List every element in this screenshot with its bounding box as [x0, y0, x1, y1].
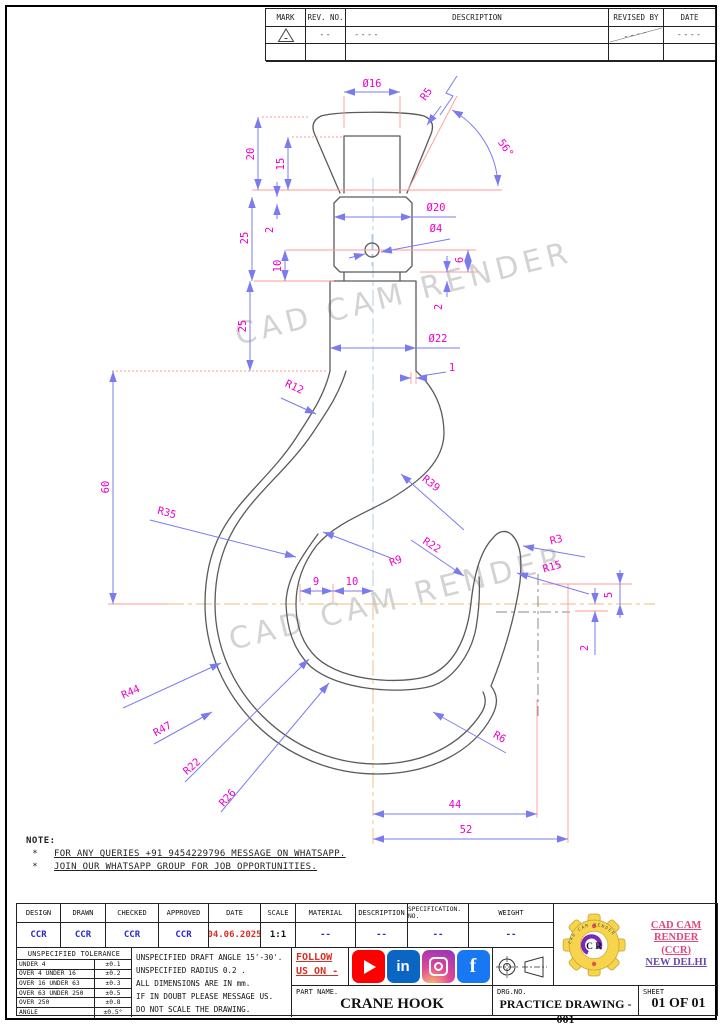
revision-empty-cell [266, 44, 306, 62]
drg-no-label: DRG.NO. [493, 986, 638, 996]
general-note-line: UNSPECIFIED DRAFT ANGLE 15'-30'. [136, 951, 291, 964]
tb-header-approved: APPROVED [159, 904, 209, 923]
dim-label: 2 [433, 304, 445, 310]
revision-rev-no: -- [306, 27, 346, 44]
tolerance-row: OVER 250 ±0.8 [17, 998, 131, 1008]
brand-line3: NEW DELHI [634, 957, 718, 970]
dim-label: Ø16 [363, 78, 382, 90]
dim-label: R9 [388, 553, 404, 569]
dim-label: 6 [454, 257, 466, 263]
revision-empty-cell [306, 44, 346, 62]
youtube-icon [352, 950, 385, 983]
dim-dia20: Ø20 [334, 202, 456, 217]
revision-header-revised-by: REVISED BY [609, 9, 664, 27]
sheet-value: 01 OF 01 [639, 996, 718, 1012]
revision-empty-cell [609, 44, 664, 62]
dim-dia16: Ø16 [344, 78, 400, 92]
tb-header-design: DESIGN [17, 904, 61, 923]
tolerance-value: ±0.5° [95, 1009, 131, 1016]
brand-line1: CAD CAM RENDER [634, 920, 718, 945]
tolerance-title: UNSPECIFIED TOLERANCE [17, 948, 131, 960]
dim-2-bottom: 2 [579, 588, 595, 655]
tb-header-drawn: DRAWN [61, 904, 106, 923]
tb-value-material: -- [296, 923, 356, 948]
tb-header-material: MATERIAL [296, 904, 356, 923]
revision-table: MARK REV. NO. DESCRIPTION REVISED BY DAT… [265, 8, 716, 61]
tolerance-range: OVER 250 [17, 998, 95, 1007]
dim-r12: R12 [281, 378, 316, 414]
dim-label: R35 [156, 505, 177, 522]
note-text: FOR ANY QUERIES +91 9454229796 MESSAGE O… [54, 849, 346, 859]
dim-dia22: Ø22 [330, 333, 460, 348]
revision-header-date: DATE [664, 9, 715, 27]
dim-label: R47 [151, 720, 173, 740]
ccr-gear-logo-icon: C R CAD CAM RENDER [558, 905, 630, 985]
tolerance-row: ANGLE ±0.5° [17, 1008, 131, 1018]
dim-r22-bowl: R22 [181, 659, 309, 782]
dim-label: 20 [245, 148, 257, 161]
dim-44: 44 [373, 799, 537, 814]
facebook-icon: f [457, 950, 490, 983]
tb-value-checked: CCR [106, 923, 159, 948]
tolerance-value: ±0.5 [95, 990, 131, 997]
tb-value-weight: -- [469, 923, 554, 948]
drawing-sheet: CAD CAM RENDER CAD CAM RENDER [0, 0, 721, 1024]
dim-label: R6 [491, 729, 508, 746]
revision-triangle-icon [277, 27, 295, 43]
dim-label: R39 [420, 473, 442, 494]
sheet-label: SHEET [639, 986, 718, 996]
tolerance-range: OVER 16 UNDER 63 [17, 979, 95, 988]
tb-value-approved: CCR [159, 923, 209, 948]
tolerance-row: OVER 63 UNDER 250 ±0.5 [17, 989, 131, 999]
tb-header-checked: CHECKED [106, 904, 159, 923]
dim-9: 9 [300, 576, 333, 591]
tolerance-range: OVER 4 UNDER 16 [17, 970, 95, 979]
dim-label: 25 [239, 232, 251, 245]
dim-r9: R9 [323, 532, 404, 569]
gear-letters: C R [586, 941, 602, 951]
sheet-cell: SHEET 01 OF 01 [639, 986, 718, 1016]
dim-60: 60 [100, 371, 113, 604]
revision-mark-cell [266, 27, 306, 44]
dim-label: 5 [603, 592, 615, 598]
note-block: NOTE: * FOR ANY QUERIES +91 9454229796 M… [26, 836, 446, 872]
note-item: * FOR ANY QUERIES +91 9454229796 MESSAGE… [26, 849, 446, 859]
tb-value-drawn: CCR [61, 923, 106, 948]
part-name-value: CRANE HOOK [292, 996, 492, 1013]
play-glyph [364, 960, 376, 974]
revision-description: ---- [346, 27, 609, 44]
dim-label: R44 [120, 683, 142, 702]
linkedin-glyph: in [396, 958, 409, 975]
dim-label: Ø22 [429, 333, 448, 345]
dim-label: R5 [418, 86, 435, 103]
dim-label: 9 [313, 576, 319, 588]
dim-label: 2 [264, 227, 276, 233]
follow-line1: FOLLOW [296, 952, 332, 963]
dim-label: R12 [283, 378, 305, 397]
revision-header-rev-no: REV. NO. [306, 9, 346, 27]
tolerance-value: ±0.2 [95, 970, 131, 977]
camera-glyph [429, 957, 448, 976]
general-note-line: IF IN DOUBT PLEASE MESSAGE US. [136, 990, 291, 1003]
extension-lines [108, 96, 632, 843]
linkedin-icon: in [387, 950, 420, 983]
general-note-line: UNSPECIFIED RADIUS 0.2 . [136, 964, 291, 977]
tb-value-description: -- [356, 923, 408, 948]
dim-label: R22 [181, 756, 203, 778]
projection-symbol-cell [493, 948, 554, 986]
drg-no-cell: DRG.NO. PRACTICE DRAWING - 001 [493, 986, 639, 1016]
tb-value-scale: 1:1 [261, 923, 296, 948]
general-note-line: DO NOT SCALE THE DRAWING. [136, 1003, 291, 1016]
dim-angle56: 56° [452, 110, 516, 186]
tb-value-design: CCR [17, 923, 61, 948]
watermark-upper: CAD CAM RENDER [231, 235, 575, 353]
dim-1: 1 [402, 362, 455, 378]
watermark-text: CAD CAM RENDER CAD CAM RENDER [225, 235, 575, 658]
dim-10-left: 10 [272, 250, 285, 281]
instagram-icon [422, 950, 455, 983]
dim-r26: R26 [217, 683, 329, 812]
dim-20: 20 [245, 117, 258, 190]
note-bullet: * [26, 849, 44, 859]
dim-dia4: Ø4 [349, 223, 450, 258]
tolerance-value: ±0.8 [95, 999, 131, 1006]
dim-25-lower: 25 [237, 281, 250, 371]
dim-label: 2 [579, 645, 591, 651]
note-text: JOIN OUR WHATSAPP GROUP FOR JOB OPPORTUN… [54, 862, 317, 872]
tolerance-row: OVER 16 UNDER 63 ±0.3 [17, 979, 131, 989]
brand-text: CAD CAM RENDER (CCR) NEW DELHI [634, 920, 718, 970]
brand-logo-cell: C R CAD CAM RENDER CAD CAM RENDER (CCR) … [554, 904, 718, 986]
tolerance-value: ±0.1 [95, 961, 131, 968]
revision-empty-cell [664, 44, 715, 62]
dim-label: 1 [449, 362, 455, 374]
revision-revised-by-cell: ---- [609, 27, 664, 44]
part-name-label: PART NAME. [292, 986, 492, 996]
dim-label: 60 [100, 481, 112, 494]
tb-header-description: DESCRIPTION [356, 904, 408, 923]
dim-r5: R5 [418, 76, 457, 125]
dim-label: Ø4 [430, 223, 443, 235]
dim-label: 15 [275, 158, 287, 171]
general-notes: UNSPECIFIED DRAFT ANGLE 15'-30'. UNSPECI… [132, 948, 292, 1017]
tb-header-scale: SCALE [261, 904, 296, 923]
brand-line2: (CCR) [634, 945, 718, 958]
dim-r6: R6 [433, 712, 508, 753]
tb-header-weight: WEIGHT [469, 904, 554, 923]
follow-us-block: FOLLOW US ON - [292, 948, 349, 986]
part-name-cell: PART NAME. CRANE HOOK [292, 986, 493, 1016]
revision-empty-cell [346, 44, 609, 62]
social-icons: in f [349, 948, 493, 986]
dim-label: 56° [495, 137, 516, 159]
revision-header-description: DESCRIPTION [346, 9, 609, 27]
title-block: DESIGN DRAWN CHECKED APPROVED DATE SCALE… [16, 903, 718, 1016]
tb-header-specification-no: SPECIFICATION. NO. [408, 904, 469, 923]
tolerance-row: UNDER 4 ±0.1 [17, 960, 131, 970]
dim-label: R26 [217, 787, 239, 809]
follow-line2: US ON - [296, 966, 338, 977]
revision-header-mark: MARK [266, 9, 306, 27]
third-angle-projection-icon [495, 951, 551, 983]
revision-date: ---- [664, 27, 715, 44]
dim-r35: R35 [150, 505, 296, 557]
tolerance-table: UNSPECIFIED TOLERANCE UNDER 4 ±0.1 OVER … [17, 948, 132, 1017]
tolerance-range: ANGLE [17, 1008, 95, 1018]
note-bullet: * [26, 862, 44, 872]
tb-value-specification-no: -- [408, 923, 469, 948]
dim-label: 52 [460, 824, 473, 836]
dim-25-upper: 25 [239, 197, 252, 281]
tb-value-date: 04.06.2025 [209, 923, 261, 948]
dim-label: 10 [272, 260, 284, 273]
general-note-line: ALL DIMENSIONS ARE IN mm. [136, 977, 291, 990]
note-item: * JOIN OUR WHATSAPP GROUP FOR JOB OPPORT… [26, 862, 446, 872]
tolerance-range: OVER 63 UNDER 250 [17, 989, 95, 998]
tolerance-value: ±0.3 [95, 980, 131, 987]
dim-label: 44 [449, 799, 462, 811]
dim-r39: R39 [401, 473, 464, 530]
facebook-glyph: f [470, 955, 477, 978]
tb-header-date: DATE [209, 904, 261, 923]
note-title: NOTE: [26, 836, 446, 846]
dim-label: Ø20 [427, 202, 446, 214]
drg-no-value: PRACTICE DRAWING - 001 [493, 997, 638, 1024]
tolerance-range: UNDER 4 [17, 960, 95, 969]
dim-label: 25 [237, 320, 249, 333]
dim-r44: R44 [120, 663, 221, 708]
tolerance-row: OVER 4 UNDER 16 ±0.2 [17, 970, 131, 980]
dim-label: R22 [420, 535, 442, 555]
dim-r47: R47 [151, 712, 212, 744]
dim-label: 10 [346, 576, 359, 588]
